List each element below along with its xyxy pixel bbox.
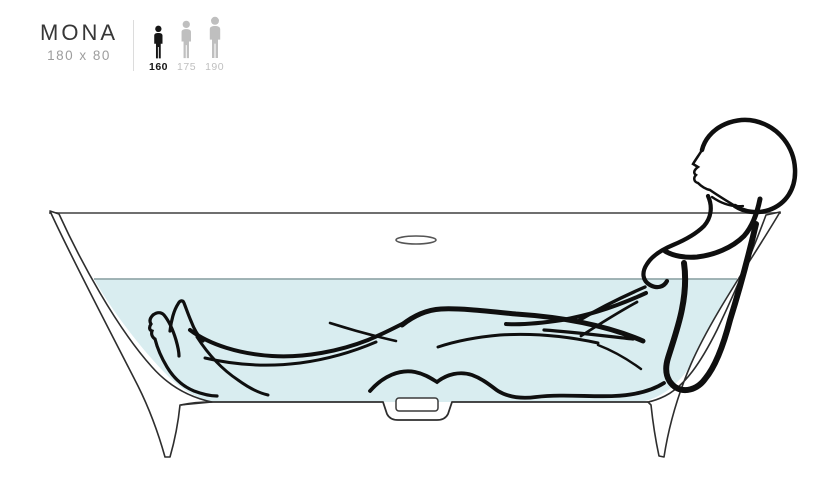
- size-option-175[interactable]: 175: [177, 20, 196, 73]
- product-diagram: MONA 180 x 80 160 175 190: [0, 0, 828, 480]
- size-label-175: 175: [177, 62, 196, 73]
- size-option-190[interactable]: 190: [205, 16, 224, 73]
- person-icon: [207, 16, 223, 60]
- bather-chest: [643, 196, 710, 287]
- person-icon: [152, 25, 165, 60]
- product-legend: MONA 180 x 80 160 175 190: [40, 16, 224, 73]
- size-label-190: 190: [205, 62, 224, 73]
- product-dimensions: 180 x 80: [40, 48, 118, 63]
- overflow-icon: [396, 236, 436, 244]
- person-icon: [179, 20, 194, 60]
- size-label-160: 160: [149, 62, 168, 73]
- product-info: MONA 180 x 80: [40, 16, 118, 73]
- size-guide: 160 175 190: [149, 16, 224, 73]
- size-option-160[interactable]: 160: [149, 25, 168, 73]
- product-name: MONA: [40, 21, 118, 45]
- drain-icon: [396, 398, 438, 411]
- legend-divider: [133, 20, 134, 71]
